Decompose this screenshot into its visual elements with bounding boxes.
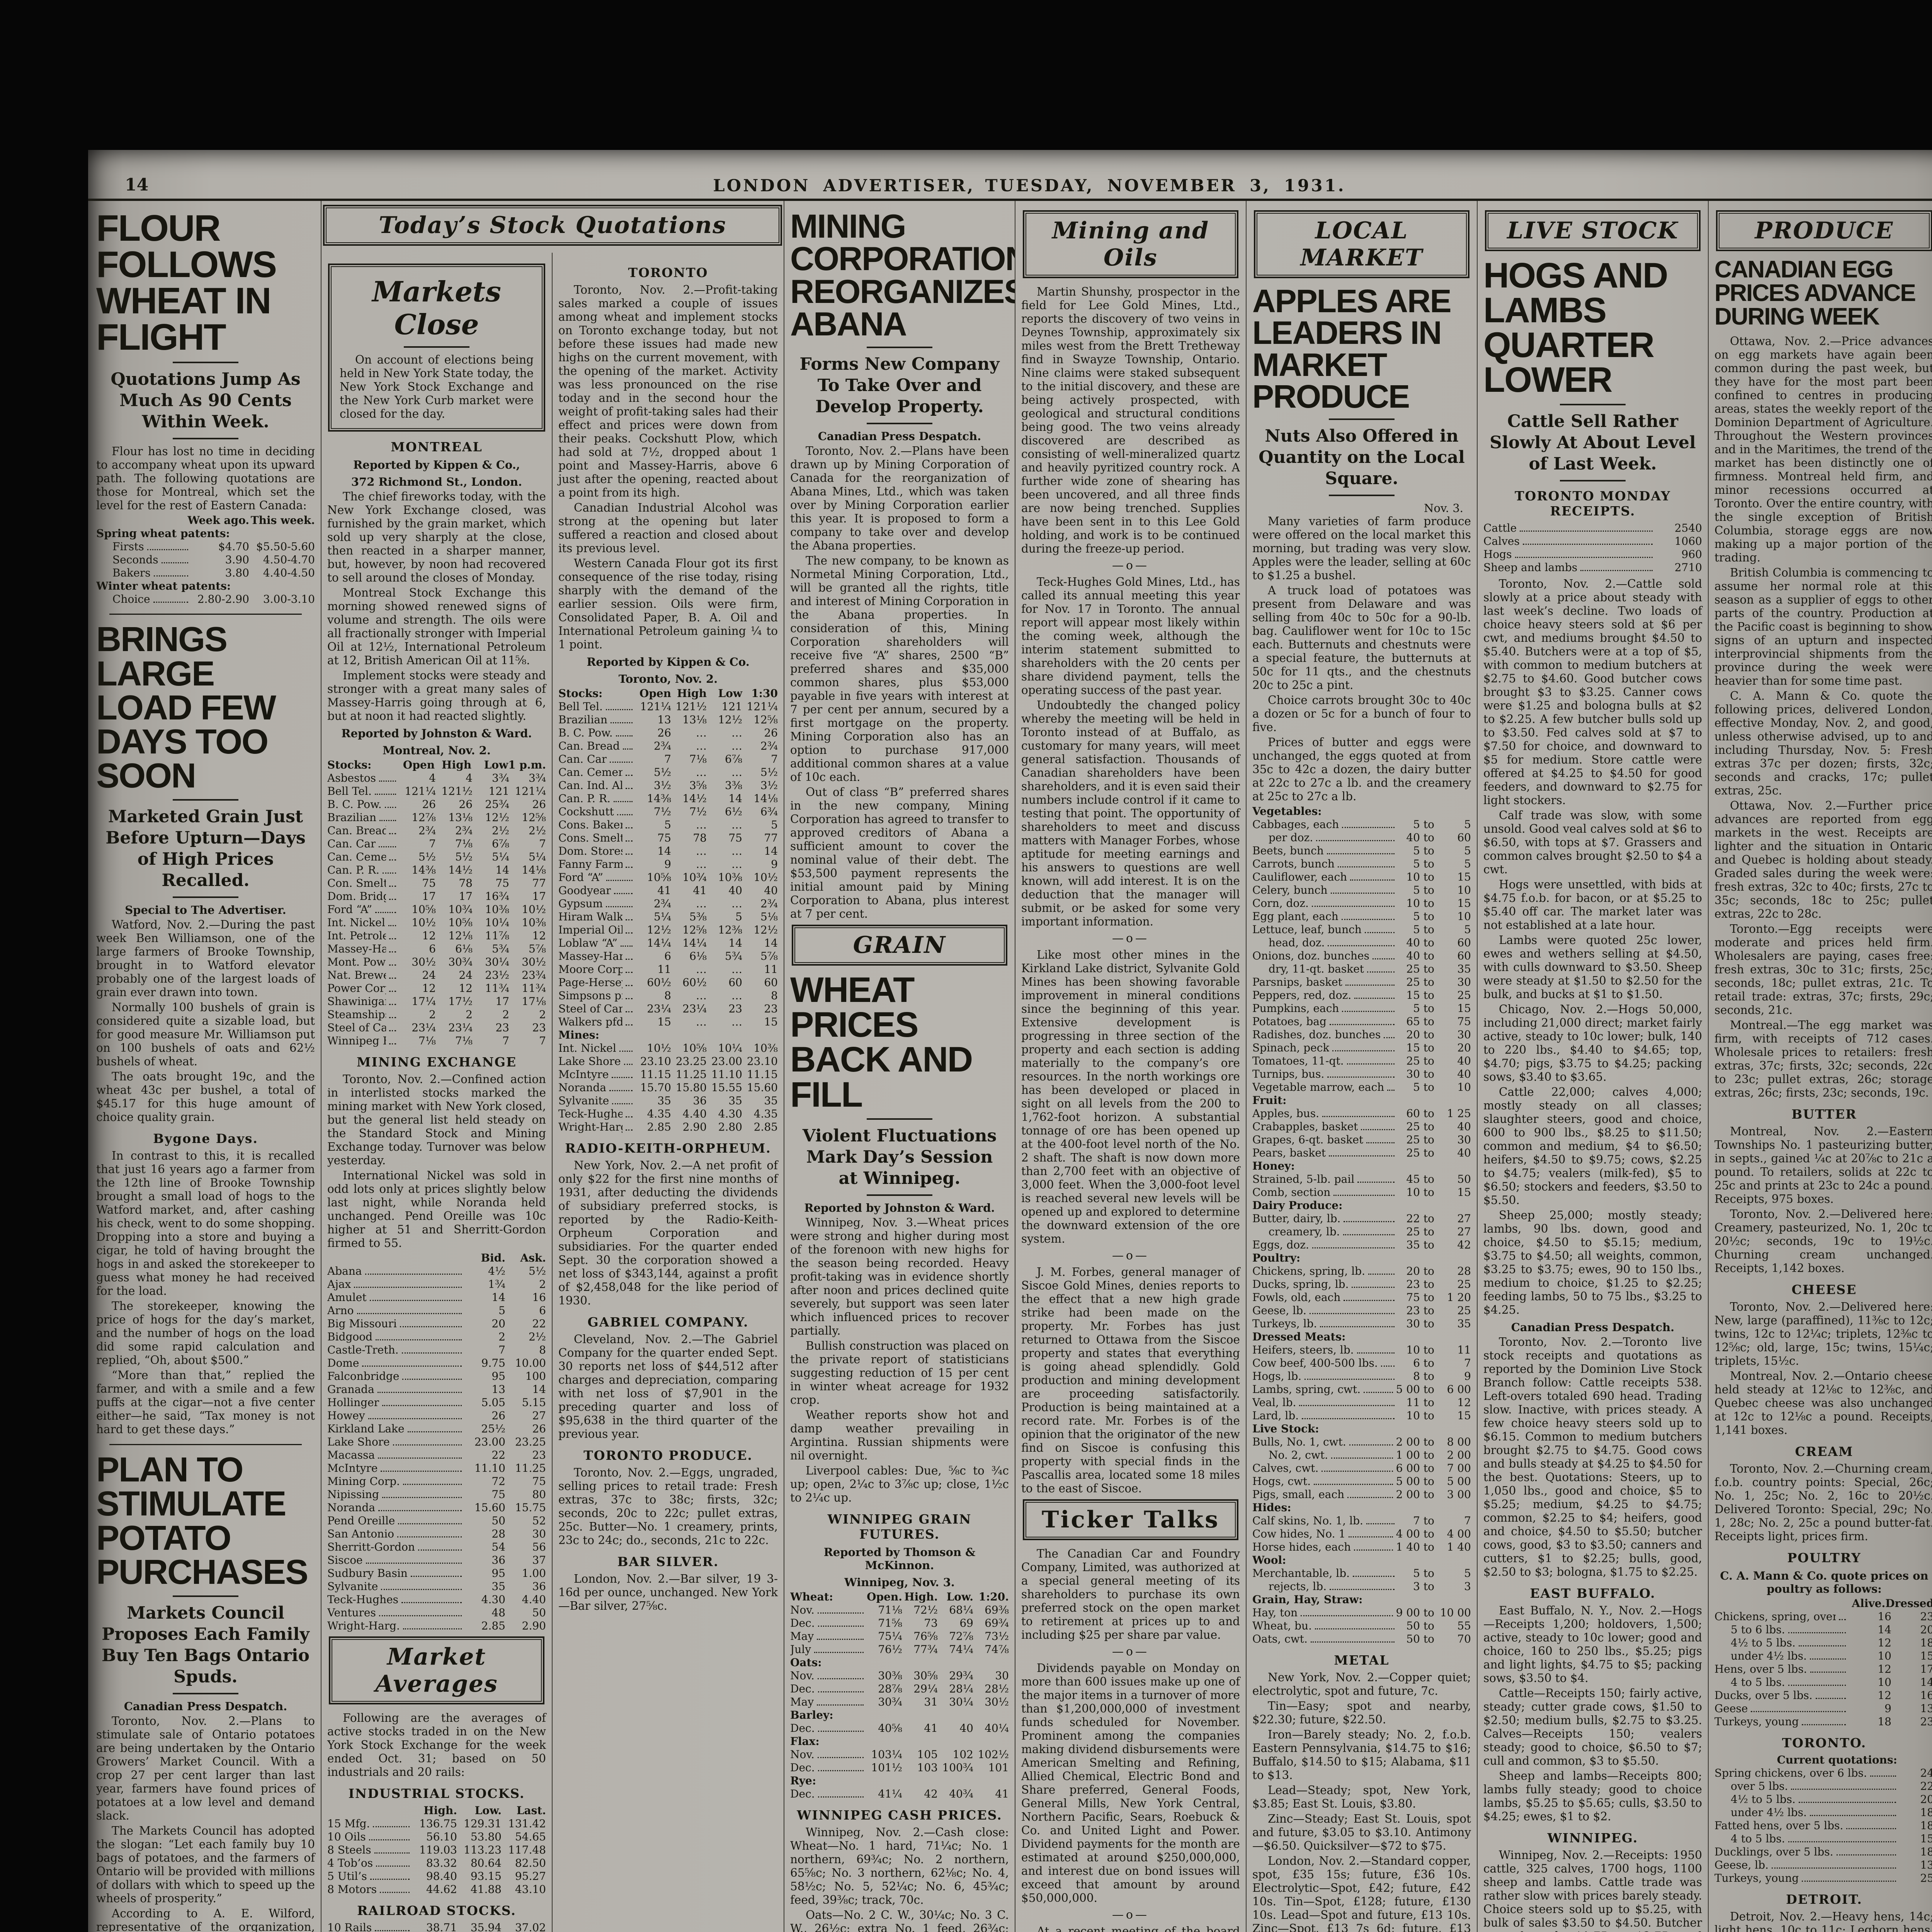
newspaper-column: LIVE STOCKHOGS AND LAMBS QUARTER LOWERCa… bbox=[1478, 201, 1709, 1932]
quote-label: Oats, cwt. bbox=[1252, 1633, 1308, 1646]
article-paragraph: Cattle—Receipts 150; fairly active, stea… bbox=[1483, 1687, 1702, 1768]
quote-label: Teck-Hughes bbox=[558, 1107, 622, 1121]
dot-leader bbox=[1839, 1619, 1846, 1620]
item-separator: —o— bbox=[1021, 1908, 1240, 1922]
quote-row: Sudbury Basin951.00 bbox=[327, 1567, 546, 1580]
quote-value: 5.05 bbox=[465, 1396, 505, 1409]
quote-value: 18 bbox=[1899, 1819, 1932, 1832]
quote-label: Chickens, spring, lb. bbox=[1252, 1265, 1365, 1278]
quote-value: 7 bbox=[636, 753, 671, 766]
quote-value: … bbox=[707, 989, 742, 1002]
dot-leader bbox=[1328, 945, 1395, 946]
quote-value: 25½ bbox=[465, 1422, 505, 1435]
quote-value: 5¼ bbox=[636, 910, 671, 923]
dot-leader bbox=[162, 562, 188, 563]
quote-value: 68¼ bbox=[938, 1604, 973, 1617]
quote-value: 26 bbox=[636, 726, 671, 740]
quote-label: Arno bbox=[327, 1304, 354, 1317]
quote-value: 23 bbox=[1891, 1715, 1932, 1728]
quote-value: 26 bbox=[509, 798, 546, 811]
section-banner: LOCAL MARKET bbox=[1254, 210, 1469, 278]
quote-label: Wheat: bbox=[790, 1590, 833, 1604]
quote-value: 11 bbox=[1434, 1344, 1471, 1357]
article-paragraph: Zinc—Steady; East St. Louis, spot and fu… bbox=[1252, 1812, 1471, 1853]
quote-category: Dairy Produce: bbox=[1252, 1199, 1342, 1212]
article-paragraph: New York, Nov. 2.—A net profit of only $… bbox=[558, 1159, 778, 1308]
quote-row: Crabapples, basket25 to40 bbox=[1252, 1120, 1471, 1133]
quote-value: 82.50 bbox=[502, 1857, 546, 1870]
newspaper-column: TORONTOToronto, Nov. 2.—Profit-taking sa… bbox=[553, 253, 784, 1932]
dot-leader bbox=[418, 1549, 462, 1551]
quote-value: 12⅜ bbox=[707, 923, 742, 937]
quote-value: 28 bbox=[1434, 1265, 1471, 1278]
quote-value: 119.03 bbox=[413, 1844, 457, 1857]
quote-row: Winnipeg Elec.7⅛7⅛77 bbox=[327, 1034, 546, 1048]
quote-value: 2.85 bbox=[742, 1121, 778, 1134]
quote-value: 14 bbox=[742, 845, 778, 858]
dot-leader bbox=[389, 859, 396, 861]
quote-label: Cons. Bakeries bbox=[558, 818, 622, 832]
quote-value: 10⅜ bbox=[707, 871, 742, 884]
dot-leader bbox=[402, 1379, 462, 1380]
article-paragraph: British Columbia is commencing to assume… bbox=[1714, 566, 1932, 688]
section-banner-title: LIVE STOCK bbox=[1490, 217, 1695, 244]
quote-value: 5 00 to bbox=[1396, 1475, 1434, 1488]
quote-value: 11 to bbox=[1398, 1396, 1434, 1409]
dot-leader bbox=[1301, 1615, 1393, 1616]
quote-value: 4 00 to bbox=[1396, 1527, 1434, 1541]
quote-category: Rye: bbox=[790, 1774, 816, 1787]
quote-value: 3½ bbox=[742, 779, 778, 792]
quote-value: Low. bbox=[457, 1804, 502, 1817]
quote-value: 3¾ bbox=[509, 772, 546, 785]
article-paragraph: Canadian Industrial Alcohol was strong a… bbox=[558, 501, 778, 555]
quote-category: Hides: bbox=[1252, 1501, 1291, 1514]
quote-row: Ventures4850 bbox=[327, 1606, 546, 1619]
quote-row: Massey-Harris66⅛5¾5⅞ bbox=[558, 950, 778, 963]
quote-value: 15.60 bbox=[465, 1501, 505, 1514]
dot-leader bbox=[624, 1064, 633, 1065]
quote-value: 10½ bbox=[399, 916, 436, 929]
dot-leader bbox=[1350, 879, 1395, 881]
quote-value: … bbox=[671, 897, 707, 910]
quote-value: 30 bbox=[973, 1669, 1009, 1682]
dot-leader bbox=[375, 1930, 410, 1931]
quote-row: 5 to 6 lbs.1420 bbox=[1714, 1623, 1932, 1636]
dot-leader bbox=[818, 1678, 864, 1679]
dot-leader bbox=[402, 1352, 462, 1354]
quote-value: 2 bbox=[509, 1008, 546, 1021]
dot-leader bbox=[383, 872, 396, 874]
quote-value: 50 to bbox=[1398, 1633, 1434, 1646]
quote-row: Apples, bus.60 to1 25 bbox=[1252, 1107, 1471, 1120]
dot-leader bbox=[403, 1628, 462, 1629]
quote-value: 10¼ bbox=[707, 1042, 742, 1055]
quote-row: under 4½ lbs.1015 bbox=[1714, 1650, 1932, 1663]
quote-row: Dec.101½103100¾101 bbox=[790, 1761, 1009, 1774]
dot-leader bbox=[389, 938, 396, 939]
dot-leader bbox=[401, 1602, 462, 1603]
divider-rule bbox=[1329, 418, 1395, 420]
article-subhead: Forms New Company To Take Over and Devel… bbox=[794, 354, 1005, 417]
quote-row: Dec.28⅞29¼28¼28½ bbox=[790, 1682, 1009, 1696]
dot-leader bbox=[1321, 1471, 1393, 1472]
quote-value: 14⅛ bbox=[509, 864, 546, 877]
quote-row: Flax: bbox=[790, 1735, 1009, 1748]
quote-label: 4½ to 5 lbs. bbox=[1714, 1793, 1796, 1806]
dot-leader bbox=[1802, 1724, 1846, 1725]
dot-leader bbox=[362, 1366, 462, 1367]
article-headline: MINING CORPORATION REORGANIZES ABANA bbox=[790, 210, 1009, 340]
quote-category: Dressed Meats: bbox=[1252, 1330, 1346, 1344]
dot-leader bbox=[1333, 1195, 1395, 1196]
dot-leader bbox=[153, 602, 188, 603]
quote-value: 74⅞ bbox=[973, 1643, 1009, 1656]
quote-value: 72 bbox=[465, 1475, 505, 1488]
quote-value: 136.75 bbox=[413, 1817, 457, 1830]
quote-value: 23¼ bbox=[671, 1002, 707, 1015]
quote-row: Int. Nickel10½10⅝10¼10⅜ bbox=[558, 1042, 778, 1055]
quote-value: 2½ bbox=[473, 824, 509, 837]
quote-row: Steel of Can.23¼23¼2323 bbox=[327, 1021, 546, 1034]
divider-rule bbox=[867, 1118, 932, 1120]
quote-value: 10.00 bbox=[505, 1357, 546, 1370]
quote-value: 2 00 to bbox=[1396, 1435, 1434, 1449]
dot-leader bbox=[626, 959, 633, 960]
quote-value: 103¼ bbox=[867, 1748, 902, 1761]
quote-label: Vegetable marrow, each bbox=[1252, 1081, 1384, 1094]
quote-label: Can. Bread bbox=[558, 740, 620, 753]
quote-value: 960 bbox=[1656, 548, 1702, 561]
quote-label: Choice bbox=[96, 593, 150, 606]
quote-value: 26 bbox=[742, 726, 778, 740]
quote-row: Dom. Bridge171716¾17 bbox=[327, 890, 546, 903]
quote-row: Mining Corp.7275 bbox=[327, 1475, 546, 1488]
quote-value: 41 bbox=[973, 1787, 1009, 1801]
article-byline: Reported by Kippen & Co. bbox=[558, 655, 778, 668]
quote-row: Simpsons pfd.8……8 bbox=[558, 989, 778, 1002]
quote-category: Honey: bbox=[1252, 1160, 1295, 1173]
quote-value: 23.10 bbox=[742, 1055, 778, 1068]
quote-row: Con. Smelters75787577 bbox=[327, 877, 546, 890]
quote-label: Lake Shore bbox=[558, 1055, 621, 1068]
quote-label: Castle-Treth. bbox=[327, 1344, 399, 1357]
article-paragraph: Ottawa, Nov. 2.—Further price advances a… bbox=[1714, 799, 1932, 921]
quote-value: 50 bbox=[505, 1606, 546, 1619]
quote-value: 12 bbox=[1849, 1636, 1891, 1650]
quote-label: Cons. Smelters bbox=[558, 832, 622, 845]
section-banner-title: Today’s Stock Quotations bbox=[328, 212, 777, 239]
quote-value: 5½ bbox=[505, 1265, 546, 1278]
dot-leader bbox=[818, 1691, 864, 1692]
quote-value: 77 bbox=[742, 832, 778, 845]
quote-label: May bbox=[790, 1696, 814, 1709]
quote-value: 1 00 to bbox=[1396, 1449, 1434, 1462]
quote-row: Alive.Dressed bbox=[1714, 1597, 1932, 1610]
quote-value: 9 bbox=[636, 858, 671, 871]
quote-table: Stocks:OpenHighLow1 p.m.Asbestos443¾3¾Be… bbox=[327, 759, 546, 1048]
dot-leader bbox=[1331, 893, 1395, 894]
newspaper-column: LOCAL MARKETAPPLES ARE LEADERS IN MARKET… bbox=[1247, 201, 1478, 1932]
dot-leader bbox=[1361, 1129, 1395, 1130]
quote-label: Falconbridge bbox=[327, 1370, 399, 1383]
dot-leader bbox=[389, 964, 396, 966]
dot-leader bbox=[1304, 1379, 1395, 1380]
divider-rule bbox=[173, 896, 238, 898]
quote-row: Cons. Smelters75787577 bbox=[558, 832, 778, 845]
quote-value: 4.40 bbox=[671, 1107, 707, 1121]
section-banner-title: Market Averages bbox=[334, 1643, 539, 1697]
quote-label: Massey-Harris bbox=[327, 942, 386, 956]
dot-leader bbox=[1330, 1024, 1395, 1025]
quote-label: Cow hides, No. 1 bbox=[1252, 1527, 1345, 1541]
quote-value: 7 00 bbox=[1434, 1462, 1471, 1475]
quote-value: 10 bbox=[1434, 884, 1471, 897]
quote-row: Steel of Can.23¼23¼2323 bbox=[558, 1002, 778, 1015]
quote-row: Hides: bbox=[1252, 1501, 1471, 1514]
section-heading: BUTTER bbox=[1714, 1107, 1932, 1122]
quote-category: Poultry: bbox=[1252, 1252, 1300, 1265]
quote-value: 18 bbox=[1899, 1806, 1932, 1819]
quote-value: 24 bbox=[436, 969, 473, 982]
divider-rule bbox=[173, 362, 238, 363]
quote-value: 20 bbox=[1899, 1793, 1932, 1806]
divider-rule bbox=[867, 347, 932, 348]
dot-leader bbox=[621, 946, 633, 947]
quote-value: High bbox=[435, 759, 471, 772]
quote-value: 10⅝ bbox=[636, 871, 671, 884]
dot-leader bbox=[374, 1852, 410, 1854]
quote-row: Page-Hersey60½60½6060 bbox=[558, 976, 778, 989]
quote-row: Noranda15.6015.75 bbox=[327, 1501, 546, 1514]
quote-value: 23.25 bbox=[671, 1055, 707, 1068]
quote-label: Eggs, doz. bbox=[1252, 1238, 1309, 1252]
quote-label: Walkers pfd. bbox=[558, 1015, 622, 1029]
quote-label: Bakers bbox=[96, 566, 151, 580]
quote-label: Sylvanite bbox=[558, 1094, 609, 1107]
quote-label: Dome bbox=[327, 1357, 359, 1370]
quote-value: 75 to bbox=[1398, 1291, 1434, 1304]
quote-value: 15 bbox=[1899, 1832, 1932, 1845]
quote-label: Firsts bbox=[96, 540, 144, 553]
dot-leader bbox=[1314, 1484, 1393, 1485]
quote-label: 4½ to 5 lbs. bbox=[1714, 1636, 1796, 1650]
quote-value: 12⅝ bbox=[742, 713, 778, 726]
quote-row: 10 Oils56.1053.8054.65 bbox=[327, 1830, 546, 1844]
quote-value: Ask. bbox=[505, 1252, 546, 1265]
quote-row: Hogs, cwt.5 00 to5 00 bbox=[1252, 1475, 1471, 1488]
quote-row: Mont. Power30½30¾30¼30½ bbox=[327, 956, 546, 969]
quote-label: 15 Mfg. bbox=[327, 1817, 370, 1830]
dot-leader bbox=[1799, 1645, 1846, 1646]
quote-label: Turnips, bus. bbox=[1252, 1068, 1324, 1081]
quote-row: Ducks, spring, lb.23 to25 bbox=[1252, 1278, 1471, 1291]
quote-value: 7⅛ bbox=[436, 837, 473, 850]
quote-label: Noranda bbox=[327, 1501, 375, 1514]
quote-label: No. 2, cwt. bbox=[1252, 1449, 1328, 1462]
quote-value: 12½ bbox=[636, 923, 671, 937]
quote-value: 2 00 bbox=[1434, 1449, 1471, 1462]
quote-row: Bid.Ask. bbox=[327, 1252, 546, 1265]
quote-row: 5 Util’s98.4093.1595.27 bbox=[327, 1870, 546, 1883]
quote-value: 14 bbox=[505, 1383, 546, 1396]
quote-value: 37.02 bbox=[502, 1921, 546, 1932]
quote-value: 14 bbox=[1891, 1676, 1932, 1689]
quote-value: 4 bbox=[436, 772, 473, 785]
dot-leader bbox=[370, 1300, 462, 1301]
dot-leader bbox=[1352, 1287, 1395, 1288]
quote-value: 15 bbox=[1434, 1002, 1471, 1015]
quote-value: 6⅛ bbox=[436, 942, 473, 956]
quote-value: 1 40 bbox=[1434, 1541, 1471, 1554]
dot-leader bbox=[1837, 1854, 1896, 1855]
quote-row: Calves, cwt.6 00 to7 00 bbox=[1252, 1462, 1471, 1475]
quote-value: 10¾ bbox=[436, 903, 473, 916]
quote-value: 15.55 bbox=[707, 1081, 742, 1094]
quote-value: 14½ bbox=[436, 864, 473, 877]
section-banner-title: Mining and Oils bbox=[1028, 217, 1233, 271]
quote-row: Cauliflower, each10 to15 bbox=[1252, 871, 1471, 884]
quote-value: 25 to bbox=[1398, 1133, 1434, 1146]
quote-value: 35 bbox=[707, 1094, 742, 1107]
quote-value: 2 bbox=[465, 1330, 505, 1344]
quote-row: Comb, section10 to15 bbox=[1252, 1186, 1471, 1199]
quote-label: Beets, bunch bbox=[1252, 844, 1324, 857]
quote-value: 35 bbox=[636, 1094, 671, 1107]
quote-row: High.Low.Last. bbox=[327, 1804, 546, 1817]
quote-value: 5 bbox=[742, 818, 778, 832]
quote-value: 12 bbox=[509, 929, 546, 942]
quote-row: Dec.71⅝736969¾ bbox=[790, 1617, 1009, 1630]
quote-value: 5½ bbox=[436, 850, 473, 864]
quote-row: Abana4½5½ bbox=[327, 1265, 546, 1278]
dot-leader bbox=[385, 807, 396, 808]
quote-label: Int. Petroleum bbox=[327, 929, 386, 942]
quote-value: 40 to bbox=[1398, 831, 1434, 844]
quote-value: 11¾ bbox=[473, 982, 509, 995]
quote-value: 15 bbox=[1434, 1186, 1471, 1199]
dot-leader bbox=[389, 978, 396, 979]
article-byline: Reported by Thomson & McKinnon. bbox=[790, 1546, 1009, 1572]
quote-row: Oats: bbox=[790, 1656, 1009, 1669]
quote-label: Moore Corp. bbox=[558, 963, 622, 976]
quote-value: 75¼ bbox=[867, 1630, 902, 1643]
quote-value: 60 bbox=[742, 976, 778, 989]
article-paragraph: New York, Nov. 2.—Copper quiet; electrol… bbox=[1252, 1671, 1471, 1698]
divider-rule bbox=[867, 423, 932, 424]
quote-label: Cattle bbox=[1483, 522, 1517, 535]
quote-label: Bell Tel. bbox=[558, 700, 603, 713]
quote-value: … bbox=[671, 726, 707, 740]
quote-value: 14⅜ bbox=[399, 864, 436, 877]
section-banner-title: PRODUCE bbox=[1721, 217, 1927, 244]
quote-label: Wright-Harg. bbox=[327, 1619, 400, 1633]
quote-row: Geese913 bbox=[1714, 1702, 1932, 1715]
quote-value: 23¼ bbox=[636, 1002, 671, 1015]
dot-leader bbox=[623, 748, 633, 750]
quote-row: Big Missouri2022 bbox=[327, 1317, 546, 1330]
quote-value: 8 bbox=[505, 1344, 546, 1357]
quote-label: Int. Nickel bbox=[327, 916, 385, 929]
quote-label: Mont. Power bbox=[327, 956, 386, 969]
quote-value: 10½ bbox=[509, 903, 546, 916]
divider-rule bbox=[404, 346, 469, 348]
quote-label: Nov. bbox=[790, 1748, 815, 1761]
quote-value: 5 to bbox=[1398, 1081, 1434, 1094]
quote-label: 5 to 6 lbs. bbox=[1714, 1623, 1785, 1636]
quote-label: Nov. bbox=[790, 1604, 815, 1617]
quote-label: under 4½ lbs. bbox=[1714, 1650, 1807, 1663]
quote-label: Granada bbox=[327, 1383, 374, 1396]
article-paragraph: London, Nov. 2.—Bar silver, 19 3-16d per… bbox=[558, 1572, 778, 1613]
quote-value: 1 p.m. bbox=[508, 759, 546, 772]
article-paragraph: Cattle 22,000; calves 4,000; mostly stea… bbox=[1483, 1085, 1702, 1207]
article-paragraph: The Canadian Car and Foundry Company, Li… bbox=[1021, 1547, 1240, 1642]
dot-leader bbox=[380, 1892, 410, 1893]
quote-value: 10 to bbox=[1398, 1344, 1434, 1357]
quote-value: 5 00 to bbox=[1396, 1383, 1434, 1396]
quote-value: 60½ bbox=[671, 976, 707, 989]
quote-value: 35 bbox=[742, 1094, 778, 1107]
quote-category: Oats: bbox=[790, 1656, 822, 1669]
quote-value: 60 bbox=[1434, 949, 1471, 963]
article-byline: Reported by Johnston & Ward. bbox=[790, 1201, 1009, 1214]
quote-row: Nat. Breweries242423½23¾ bbox=[327, 969, 546, 982]
quote-label: Ford “A” bbox=[558, 871, 603, 884]
article-paragraph: The storekeeper, knowing the price of ho… bbox=[96, 1299, 315, 1367]
quote-value: … bbox=[707, 818, 742, 832]
quote-value: 23 bbox=[1891, 1610, 1932, 1623]
quote-label: Steel of Can. bbox=[327, 1021, 386, 1034]
quote-value: 7 bbox=[1434, 1357, 1471, 1370]
quote-value: 35 bbox=[1434, 963, 1471, 976]
quote-value: 13 bbox=[465, 1383, 505, 1396]
dot-leader bbox=[626, 854, 633, 855]
quote-row: Ford “A”10⅝10¾10⅜10½ bbox=[558, 871, 778, 884]
quote-value: … bbox=[707, 963, 742, 976]
article-rule bbox=[109, 1444, 302, 1445]
article-paragraph: Sheep 25,000; mostly steady; lambs, 90 l… bbox=[1483, 1209, 1702, 1317]
quote-row: Can. P. R.14⅜14½1414⅛ bbox=[327, 864, 546, 877]
article-paragraph: Prices of butter and eggs were unchanged… bbox=[1252, 736, 1471, 803]
quote-value: 35 bbox=[1434, 1317, 1471, 1330]
quote-label: July bbox=[790, 1643, 811, 1656]
quote-value: 121 bbox=[707, 700, 742, 713]
quote-row: Veal, lb.11 to12 bbox=[1252, 1396, 1471, 1409]
quote-row: head, doz.40 to60 bbox=[1252, 936, 1471, 949]
quote-row: Fowls, old, each75 to1 20 bbox=[1252, 1291, 1471, 1304]
quote-row: Tomatoes, 11-qt.25 to40 bbox=[1252, 1054, 1471, 1068]
dot-leader bbox=[1327, 1077, 1395, 1078]
article-paragraph: Calf trade was slow, with some unsold. G… bbox=[1483, 809, 1702, 876]
quote-value: 14¼ bbox=[636, 937, 671, 950]
dot-leader bbox=[379, 1615, 462, 1616]
dot-leader bbox=[626, 840, 633, 842]
dot-leader bbox=[379, 820, 396, 821]
newspaper-column: Mining and OilsMartin Shunshy, prospecto… bbox=[1015, 201, 1247, 1932]
quote-value: 4.30 bbox=[707, 1107, 742, 1121]
article-paragraph: Toronto, Nov. 2.—Cattle sold slowly at a… bbox=[1483, 577, 1702, 807]
quote-value: 16 bbox=[1891, 1689, 1932, 1702]
quote-value: 76⅝ bbox=[902, 1630, 938, 1643]
quote-label: Siscoe bbox=[327, 1554, 363, 1567]
quote-value: … bbox=[707, 766, 742, 779]
quote-row: Celery, bunch5 to10 bbox=[1252, 884, 1471, 897]
quote-value: 30¼ bbox=[938, 1696, 973, 1709]
quote-label: Spring chickens, over 6 lbs. bbox=[1714, 1767, 1867, 1780]
quote-table: Cattle2540Calves1060Hogs960Sheep and lam… bbox=[1483, 522, 1702, 574]
article-paragraph: The Markets Council has adopted the slog… bbox=[96, 1824, 315, 1905]
